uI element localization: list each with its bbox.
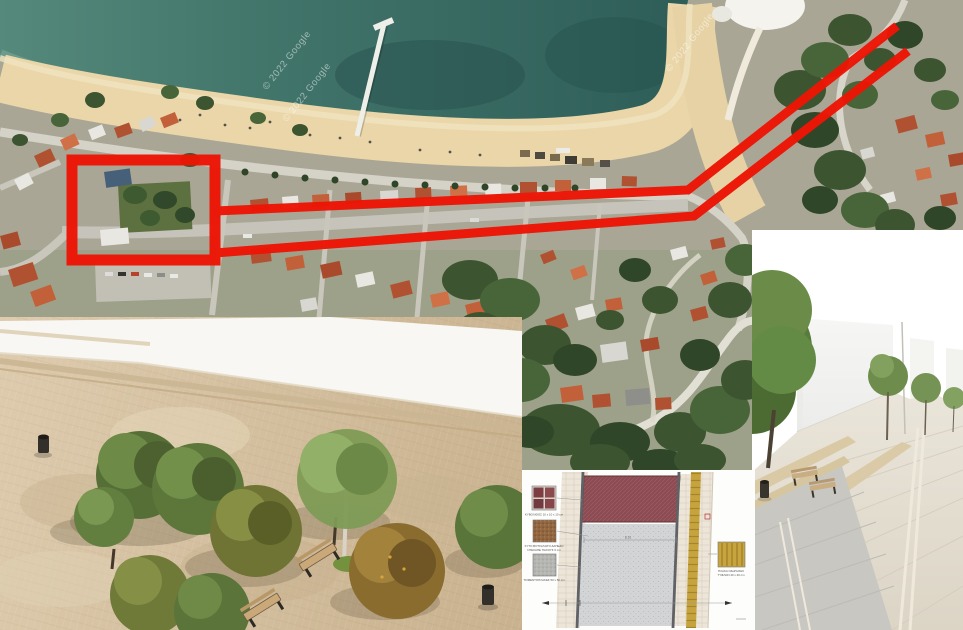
raised-crossing-red-paving [582,476,680,522]
presentation-collage: © 2022 Google © 2022 Google © 2022 Googl… [0,0,963,630]
paving-plan: 8.10 ΚΥΒΟΛΙΘΟΣ 10 x 10 x 10 cm ΧΥΤΟ ΒΟΤΣ… [522,470,755,630]
plan-footnote-mark [736,618,746,620]
gravel-label2: ΝΤΕΚΑΠΕ ΠΑΧΟΥΣ 6 cm [527,548,561,552]
trash-bin [34,435,52,459]
concrete-slab-label: ΤΣΙΜΕΝΤΟΠΛΑΚΕΣ 50 x 50 cm [523,578,565,582]
trash-bin [478,585,498,611]
tactile-paving-label2: ΤΥΦΛΩΝ 40 x 40 cm [718,573,746,577]
plaza-render [0,317,522,630]
street-render [752,230,963,630]
ramp-wall [0,317,522,437]
cobblestone-label: ΚΥΒΟΛΙΘΟΣ 10 x 10 x 10 cm [525,513,564,517]
svg-text:8.10: 8.10 [625,536,631,540]
